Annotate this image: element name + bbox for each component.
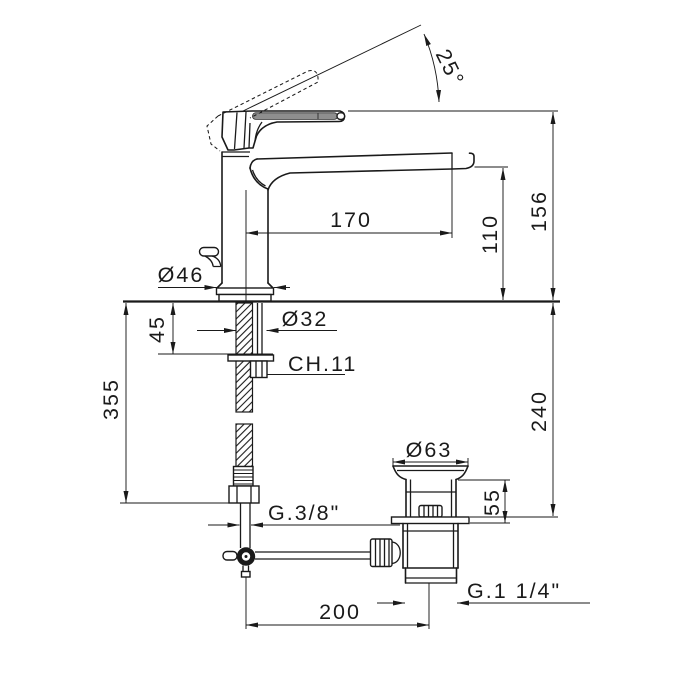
technical-drawing-page: 25° 170 110 156 240 Ø46 [0, 0, 700, 700]
dim-label-240: 240 [527, 390, 551, 432]
clamp-screw [223, 552, 237, 561]
dim-spout-reach: 170 [246, 169, 452, 302]
dim-drain-depth: 240 [470, 303, 558, 517]
dim-total-height: 156 [527, 112, 553, 300]
angle-reference-line [243, 25, 421, 111]
dim-label-63: Ø63 [406, 438, 453, 462]
spout [250, 153, 474, 190]
dim-label-170: 170 [330, 208, 372, 232]
locknut-washer [228, 355, 274, 361]
dim-handle-angle: 25° [243, 25, 558, 111]
dim-label-angle: 25° [431, 45, 469, 90]
popup-plug-stem [419, 506, 442, 518]
rod-clamp-nut [371, 539, 401, 567]
waste-tailpipe [406, 568, 457, 583]
base-plate-lower [219, 295, 271, 302]
popup-linkage [223, 547, 371, 577]
dim-shank-diameter: Ø32 [197, 307, 337, 331]
thread-section [234, 467, 254, 487]
grip-end-cap [337, 113, 345, 120]
dim-spout-height: 110 [475, 167, 509, 300]
faucet-dimension-drawing: 25° 170 110 156 240 Ø46 [0, 0, 700, 700]
handle-grip-inlay [253, 113, 338, 120]
dim-label-200: 200 [319, 600, 361, 624]
dim-label-46: Ø46 [158, 263, 205, 287]
ch11-hex-nut [251, 361, 268, 378]
mounting-shank [228, 303, 274, 548]
dim-base-diameter: Ø46 [158, 263, 290, 288]
horizontal-rod [255, 552, 371, 559]
dim-label-32: Ø32 [282, 307, 329, 331]
label-wrench-size: CH.11 [267, 352, 357, 376]
supply-hose-nut [229, 486, 259, 503]
handle [222, 111, 345, 150]
threaded-shank-lower [236, 424, 253, 467]
dim-supply-thread: G.3/8" [208, 501, 400, 525]
dim-label-45: 45 [145, 315, 169, 343]
dim-label-g38: G.3/8" [268, 501, 340, 525]
dim-label-55: 55 [480, 488, 504, 516]
drain-assembly [371, 466, 470, 583]
dim-label-156: 156 [527, 190, 551, 232]
dim-label-g114: G.1 1/4" [467, 579, 561, 603]
pull-rod-lines [258, 303, 263, 355]
dim-label-ch11: CH.11 [288, 352, 357, 376]
supply-pipe-end [241, 503, 251, 548]
rod-end-cap [242, 572, 251, 578]
dim-label-110: 110 [478, 214, 502, 254]
waste-flange [392, 517, 470, 524]
dim-deck-thickness: 45 [145, 303, 273, 354]
base-plate-upper [217, 288, 274, 295]
dim-waste-diameter: Ø63 [393, 438, 468, 466]
dim-label-355: 355 [99, 378, 123, 420]
